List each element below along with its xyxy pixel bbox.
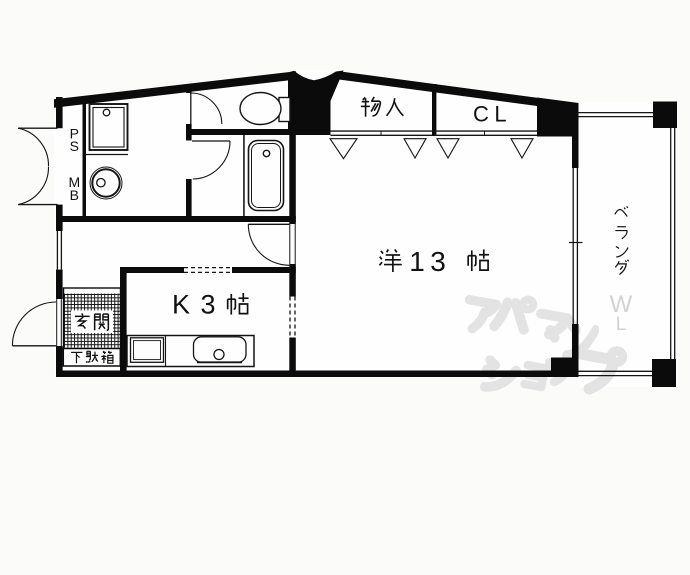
svg-text:3: 3 [200, 290, 215, 320]
svg-text:S: S [70, 138, 79, 154]
svg-text:C: C [473, 102, 489, 127]
svg-text:L: L [494, 102, 506, 127]
svg-text:L: L [616, 314, 627, 335]
svg-text:B: B [70, 187, 79, 203]
svg-text:K: K [172, 290, 190, 320]
svg-text:3: 3 [430, 246, 446, 277]
svg-text:1: 1 [409, 246, 425, 277]
